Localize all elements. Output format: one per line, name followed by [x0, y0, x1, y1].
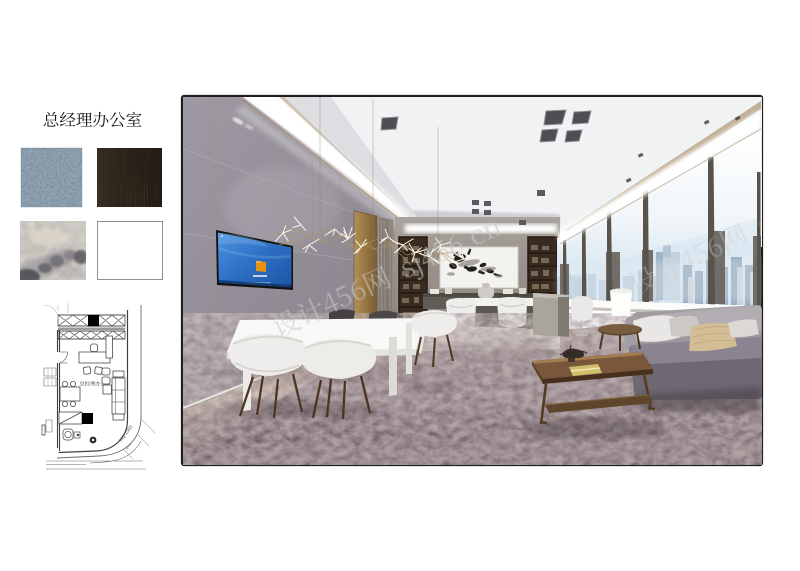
- svg-text:MQ-1083: MQ-1083: [118, 424, 134, 443]
